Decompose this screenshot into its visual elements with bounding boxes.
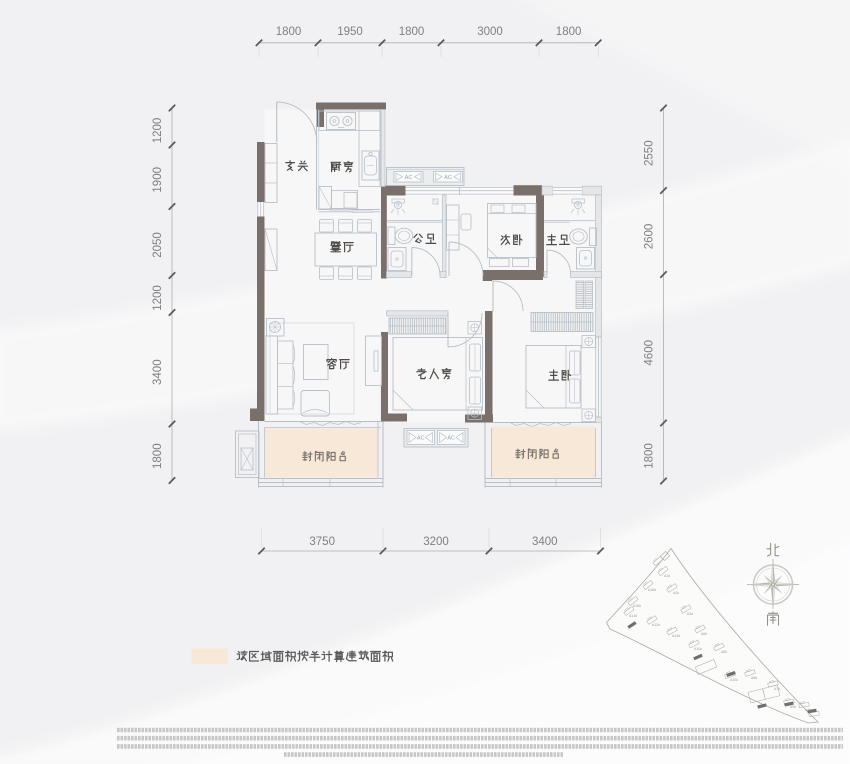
svg-text:A5#: A5# — [721, 650, 727, 654]
svg-text:A8#: A8# — [751, 676, 757, 680]
svg-text:AC: AC — [444, 175, 452, 181]
svg-text:AC: AC — [417, 436, 425, 442]
svg-text:A7#: A7# — [774, 687, 780, 691]
svg-text:3750: 3750 — [309, 536, 335, 548]
svg-text:3400: 3400 — [532, 536, 558, 548]
svg-text:A11#: A11# — [694, 647, 702, 651]
svg-text:1800: 1800 — [556, 26, 582, 38]
svg-text:3200: 3200 — [423, 536, 449, 548]
svg-text:A14#: A14# — [629, 614, 637, 618]
svg-text:A1#: A1# — [664, 574, 670, 578]
svg-text:A2#: A2# — [673, 591, 679, 595]
svg-text:1950: 1950 — [337, 26, 363, 38]
svg-text:1800: 1800 — [152, 443, 164, 469]
svg-text:2050: 2050 — [152, 232, 164, 258]
svg-text:A10#: A10# — [730, 678, 738, 682]
svg-text:AC: AC — [405, 175, 413, 181]
svg-text:4600: 4600 — [644, 340, 656, 366]
svg-text:1800: 1800 — [276, 26, 302, 38]
svg-text:AC: AC — [447, 436, 455, 442]
svg-text:A12#: A12# — [652, 623, 660, 627]
svg-text:A9#: A9# — [790, 705, 796, 709]
svg-text:2600: 2600 — [644, 224, 656, 250]
svg-text:3400: 3400 — [152, 359, 164, 385]
svg-text:A3#: A3# — [687, 612, 693, 616]
svg-text:2550: 2550 — [644, 140, 656, 166]
svg-text:A13#: A13# — [672, 634, 680, 638]
svg-text:A4#: A4# — [805, 708, 811, 712]
svg-text:3000: 3000 — [477, 26, 503, 38]
svg-text:1900: 1900 — [152, 167, 164, 193]
svg-text:A16#: A16# — [648, 588, 656, 592]
svg-text:A15#: A15# — [633, 604, 641, 608]
svg-text:1200: 1200 — [152, 285, 164, 311]
svg-text:1800: 1800 — [644, 443, 656, 469]
svg-text:1800: 1800 — [399, 26, 425, 38]
svg-text:A6#: A6# — [701, 632, 707, 636]
svg-text:1200: 1200 — [152, 118, 164, 144]
